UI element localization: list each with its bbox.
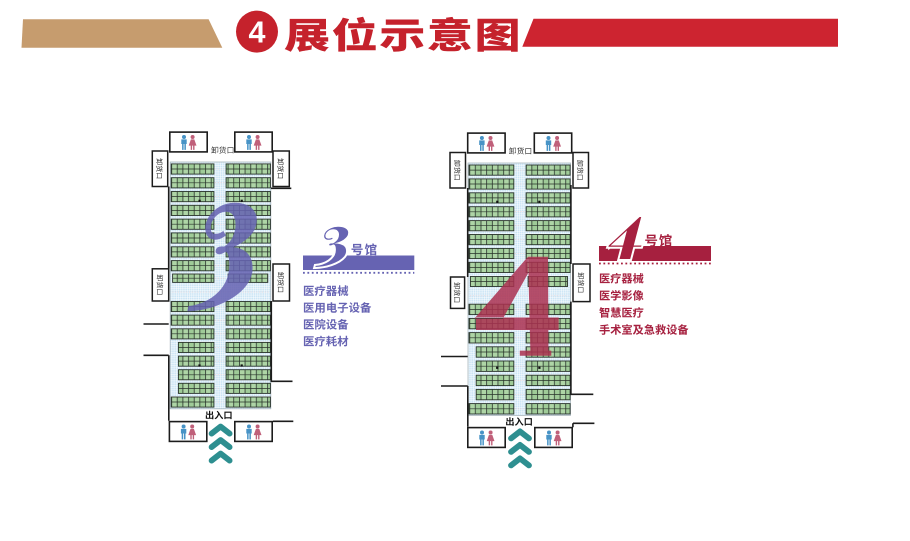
svg-text:4: 4 xyxy=(249,15,266,49)
